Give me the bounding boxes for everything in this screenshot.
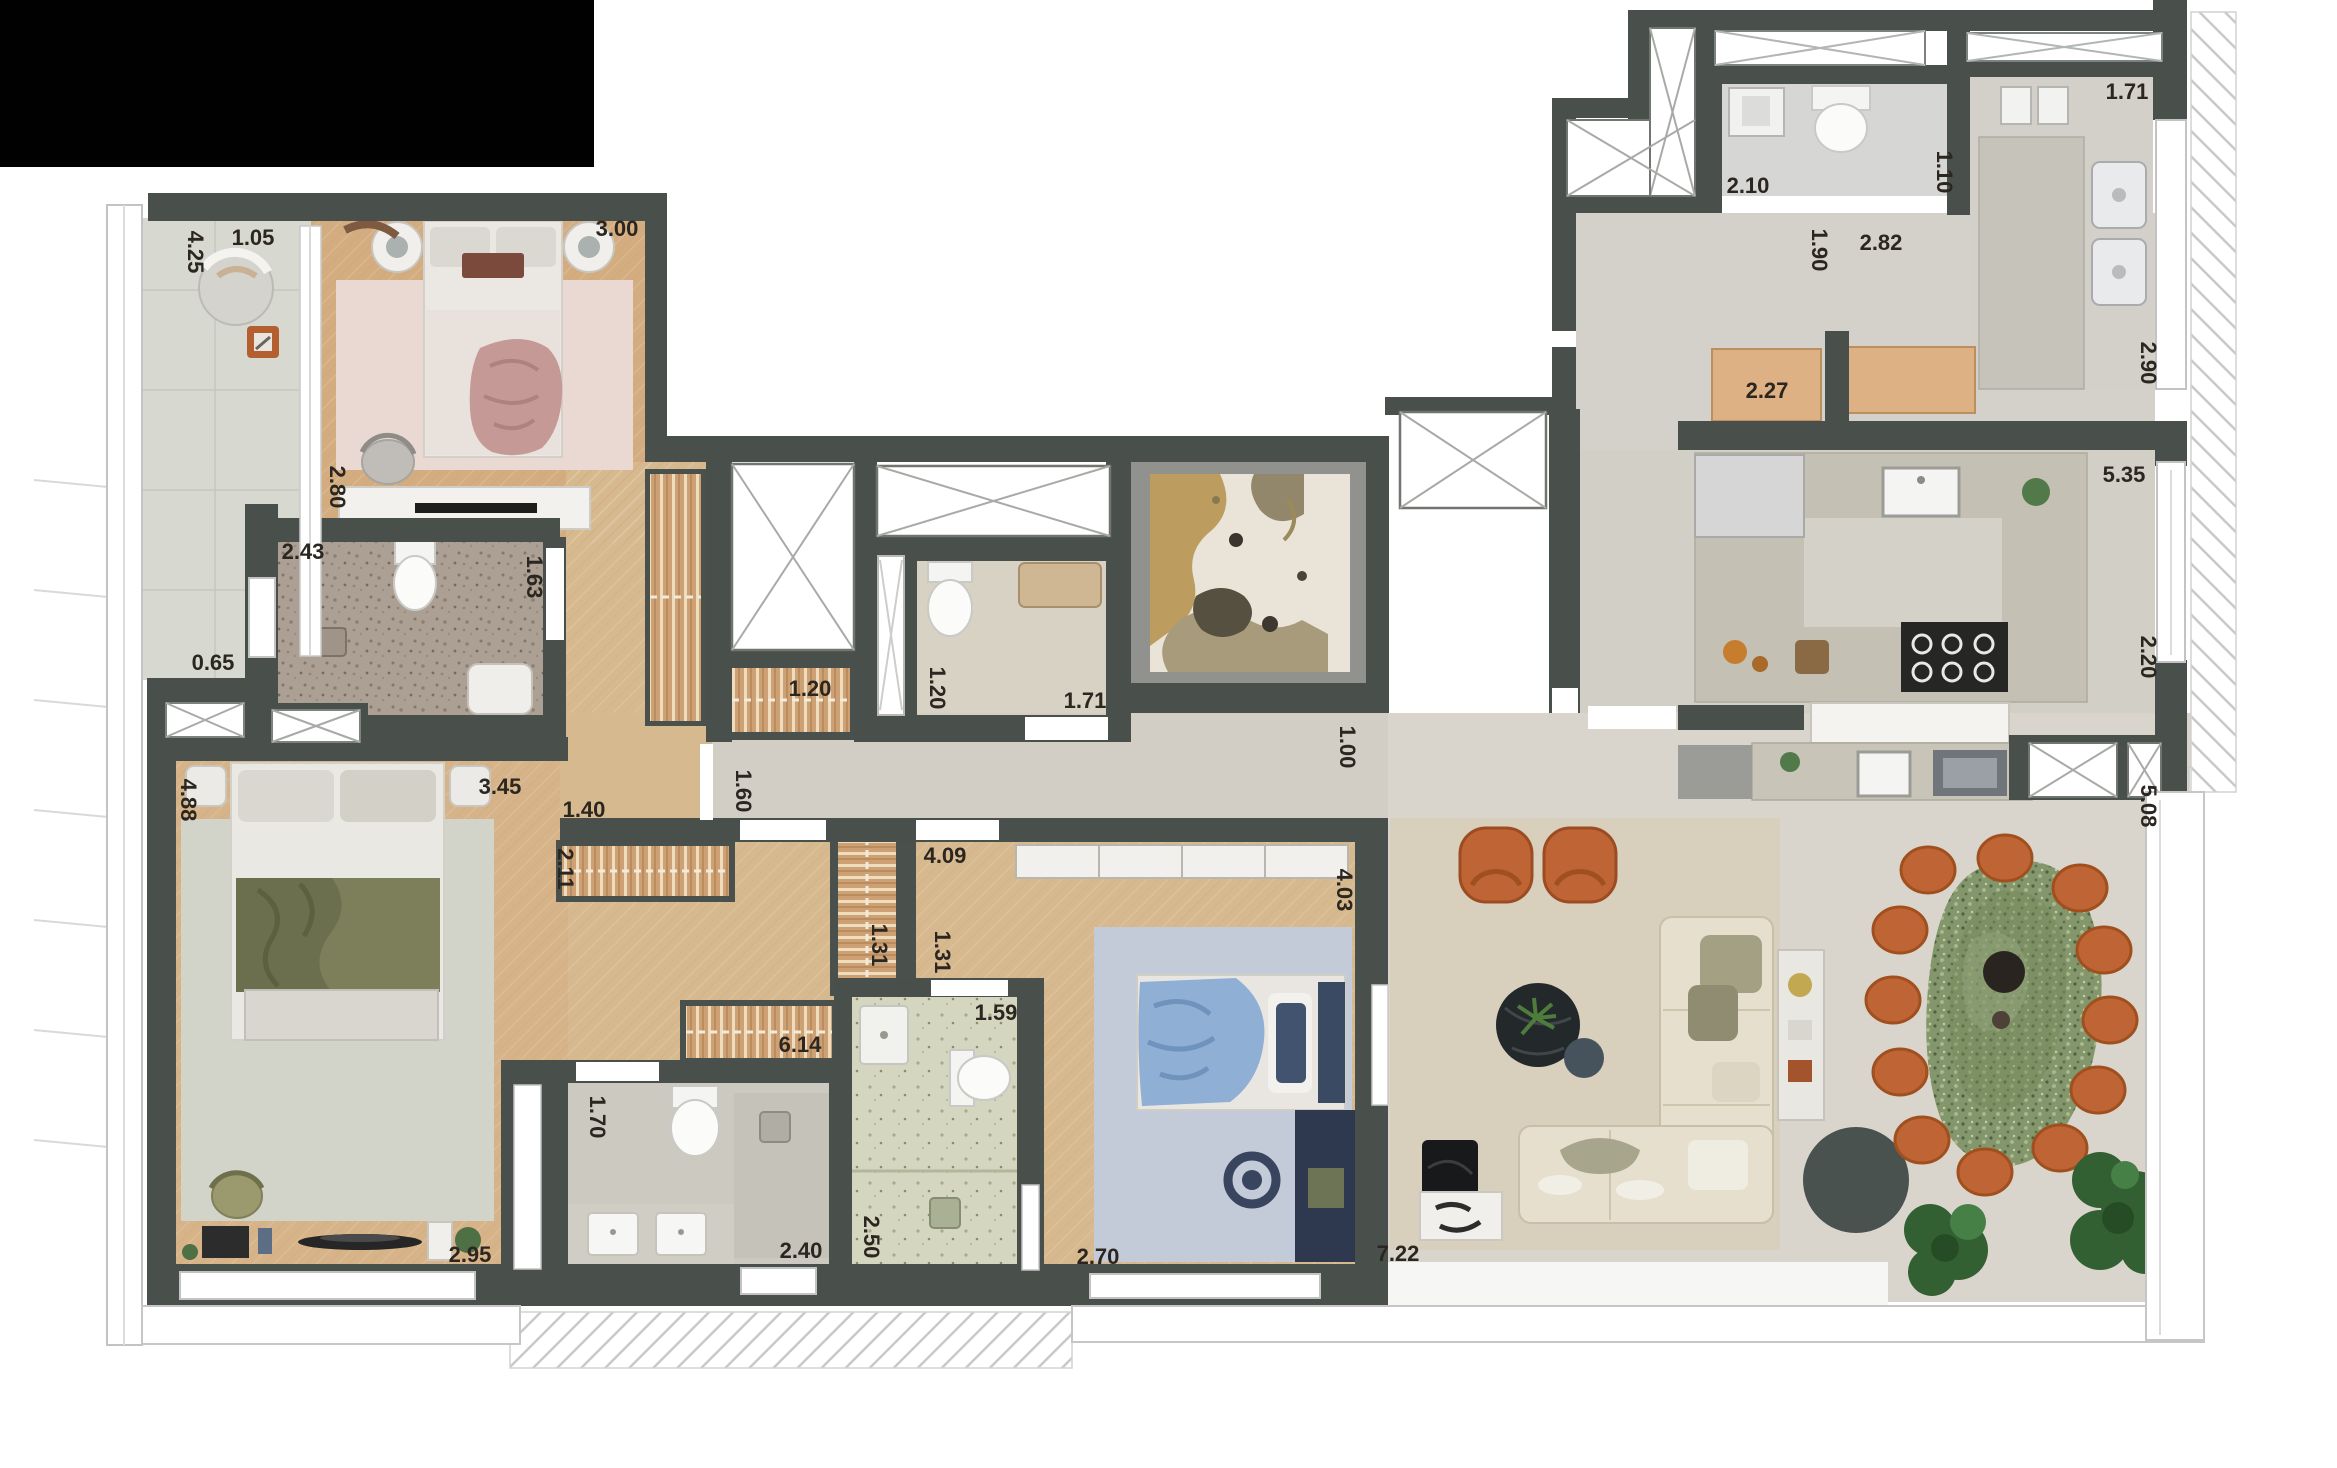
svg-text:2.20: 2.20: [2136, 636, 2161, 679]
svg-text:1.00: 1.00: [1335, 726, 1360, 769]
svg-text:7.22: 7.22: [1377, 1241, 1420, 1266]
svg-text:1.10: 1.10: [1932, 151, 1957, 194]
svg-text:1.71: 1.71: [2106, 79, 2149, 104]
svg-text:5.08: 5.08: [2136, 785, 2161, 828]
svg-text:1.20: 1.20: [789, 676, 832, 701]
svg-text:0.65: 0.65: [192, 650, 235, 675]
svg-text:4.88: 4.88: [176, 779, 201, 822]
svg-text:1.70: 1.70: [585, 1096, 610, 1139]
svg-text:1.40: 1.40: [563, 797, 606, 822]
svg-text:2.90: 2.90: [2136, 342, 2161, 385]
svg-text:2.40: 2.40: [780, 1238, 823, 1263]
svg-text:4.03: 4.03: [1332, 869, 1357, 912]
svg-text:1.59: 1.59: [975, 1000, 1018, 1025]
svg-text:2.95: 2.95: [449, 1242, 492, 1267]
svg-text:2.10: 2.10: [1727, 173, 1770, 198]
svg-text:4.09: 4.09: [924, 843, 967, 868]
svg-text:2.82: 2.82: [1860, 230, 1903, 255]
svg-text:1.60: 1.60: [731, 770, 756, 813]
svg-text:1.05: 1.05: [232, 225, 275, 250]
svg-text:2.80: 2.80: [325, 466, 350, 509]
svg-text:1.63: 1.63: [522, 556, 547, 599]
svg-text:3.00: 3.00: [596, 216, 639, 241]
svg-text:3.45: 3.45: [479, 774, 522, 799]
svg-text:1.31: 1.31: [867, 924, 892, 967]
svg-text:1.31: 1.31: [930, 931, 955, 974]
svg-text:6.14: 6.14: [779, 1032, 823, 1057]
svg-text:2.70: 2.70: [1077, 1244, 1120, 1269]
svg-text:2.11: 2.11: [553, 848, 578, 890]
svg-text:1.20: 1.20: [925, 667, 950, 710]
svg-text:1.71: 1.71: [1064, 688, 1107, 713]
svg-text:5.35: 5.35: [2103, 462, 2146, 487]
svg-text:2.50: 2.50: [859, 1216, 884, 1259]
svg-text:2.27: 2.27: [1746, 378, 1789, 403]
svg-text:1.90: 1.90: [1807, 229, 1832, 272]
svg-text:2.43: 2.43: [282, 539, 325, 564]
svg-text:4.25: 4.25: [183, 231, 208, 274]
